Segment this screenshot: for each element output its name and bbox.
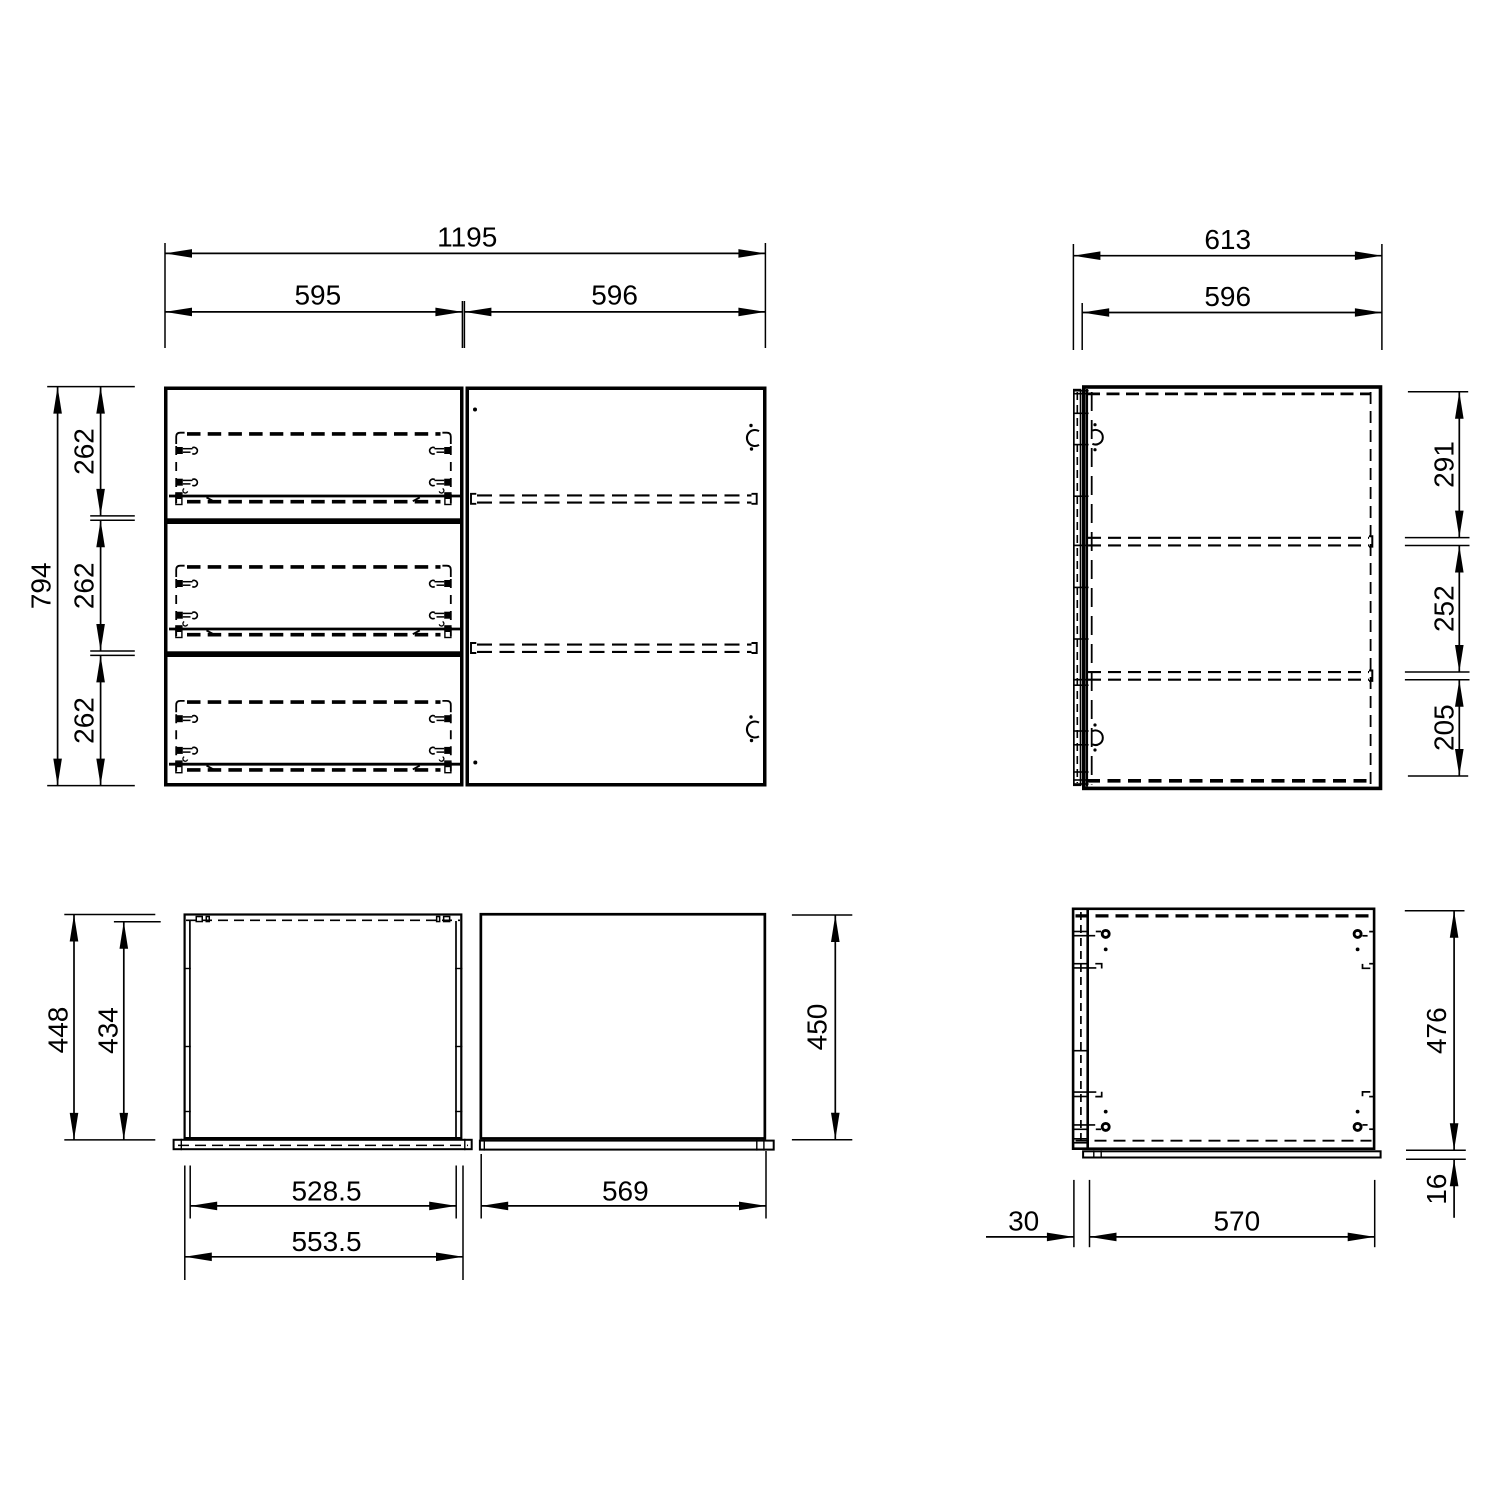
svg-text:553.5: 553.5: [291, 1226, 361, 1257]
svg-text:252: 252: [1428, 585, 1459, 632]
svg-text:262: 262: [69, 562, 100, 609]
svg-text:570: 570: [1213, 1206, 1260, 1237]
svg-text:434: 434: [93, 1007, 124, 1054]
svg-text:794: 794: [26, 562, 57, 609]
svg-text:528.5: 528.5: [291, 1176, 361, 1207]
svg-text:205: 205: [1428, 704, 1459, 751]
svg-text:450: 450: [802, 1004, 833, 1051]
svg-text:613: 613: [1204, 224, 1251, 255]
svg-text:16: 16: [1421, 1174, 1452, 1205]
svg-text:569: 569: [602, 1176, 649, 1207]
svg-text:448: 448: [42, 1007, 73, 1054]
svg-text:30: 30: [1008, 1206, 1039, 1237]
svg-text:262: 262: [69, 428, 100, 475]
svg-text:262: 262: [69, 697, 100, 744]
svg-text:595: 595: [294, 279, 341, 310]
svg-text:596: 596: [591, 279, 638, 310]
svg-text:291: 291: [1428, 441, 1459, 488]
svg-text:596: 596: [1204, 281, 1251, 312]
svg-text:1195: 1195: [437, 222, 497, 253]
svg-text:476: 476: [1421, 1007, 1452, 1054]
